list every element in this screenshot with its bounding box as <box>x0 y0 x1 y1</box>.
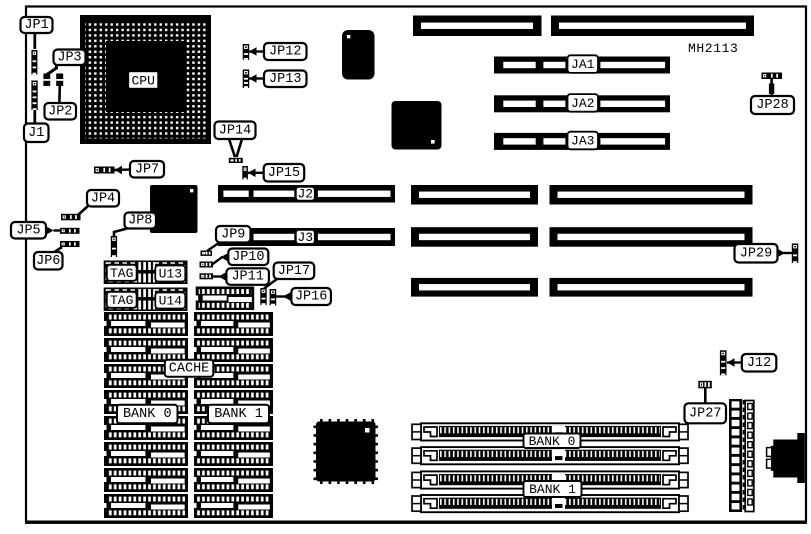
svg-text:JP2: JP2 <box>48 104 72 119</box>
svg-text:JP13: JP13 <box>269 72 301 87</box>
svg-text:JA1: JA1 <box>571 57 595 72</box>
svg-text:U14: U14 <box>159 294 183 309</box>
svg-text:JA3: JA3 <box>571 134 594 149</box>
svg-text:JP29: JP29 <box>740 246 772 261</box>
svg-text:JP10: JP10 <box>232 250 264 265</box>
svg-text:BANK 0: BANK 0 <box>123 407 172 422</box>
svg-text:JP27: JP27 <box>689 406 721 421</box>
svg-text:JP15: JP15 <box>268 166 300 181</box>
svg-text:JP9: JP9 <box>221 227 245 242</box>
svg-text:JP14: JP14 <box>219 123 251 138</box>
svg-text:JP7: JP7 <box>135 162 159 177</box>
svg-text:BANK 0: BANK 0 <box>529 434 576 449</box>
svg-text:JP3: JP3 <box>57 50 81 65</box>
svg-text:JP5: JP5 <box>16 223 40 238</box>
svg-text:J1: J1 <box>28 126 44 141</box>
svg-text:JP28: JP28 <box>756 98 788 113</box>
svg-text:JP1: JP1 <box>24 18 48 33</box>
svg-text:TAG: TAG <box>110 266 133 281</box>
svg-text:J3: J3 <box>297 230 313 245</box>
svg-text:JP16: JP16 <box>295 290 327 305</box>
svg-text:JP17: JP17 <box>278 264 310 279</box>
svg-text:JP8: JP8 <box>128 214 152 229</box>
svg-text:JA2: JA2 <box>571 96 594 111</box>
svg-text:JP11: JP11 <box>231 270 263 285</box>
svg-text:JP4: JP4 <box>91 191 115 206</box>
svg-text:BANK 1: BANK 1 <box>529 482 576 497</box>
svg-text:TAG: TAG <box>110 293 133 308</box>
svg-text:JP6: JP6 <box>36 254 60 269</box>
svg-text:J12: J12 <box>747 356 771 371</box>
svg-text:J2: J2 <box>297 187 313 202</box>
svg-text:JP12: JP12 <box>269 45 301 60</box>
svg-text:MH2113: MH2113 <box>688 41 738 56</box>
svg-text:CPU: CPU <box>131 73 154 88</box>
svg-text:BANK 1: BANK 1 <box>214 407 263 422</box>
svg-text:U13: U13 <box>159 267 182 282</box>
svg-text:CACHE: CACHE <box>169 361 210 376</box>
